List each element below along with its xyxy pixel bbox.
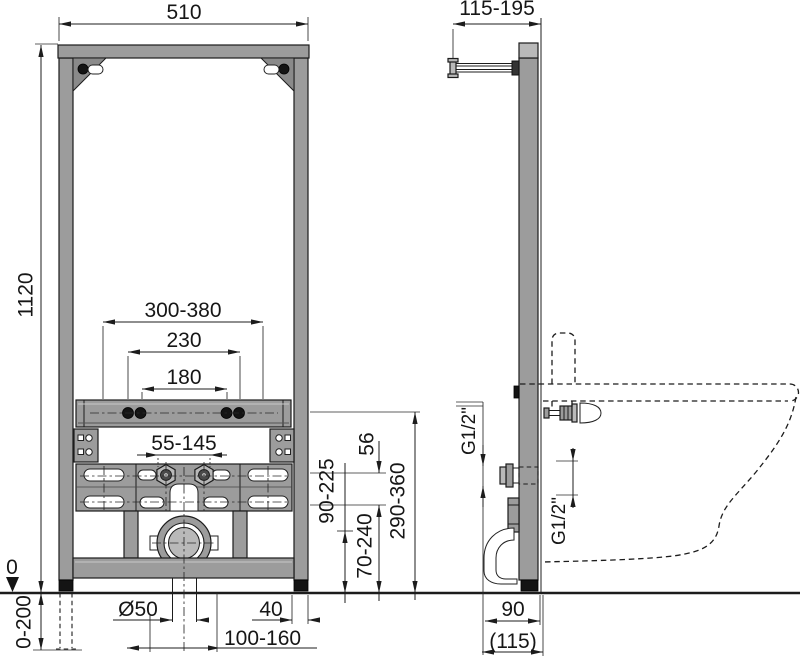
seat-crossbar <box>76 400 291 427</box>
dim-frame-height: 1120 <box>15 272 38 317</box>
drain-elbow <box>484 498 519 584</box>
dim-stud-180: 180 <box>166 366 201 389</box>
corner-gusset-right <box>261 58 294 91</box>
stud-cap-icon <box>580 403 601 423</box>
dim-drain-offset: 100-160 <box>224 627 301 650</box>
dim-height-studs: 290-360 <box>387 462 410 539</box>
dim-height-water: 90-225 <box>316 458 339 523</box>
anchor-bolt-icon <box>78 64 88 74</box>
dim-profile-width: 40 <box>259 598 282 621</box>
slot-hole <box>138 470 156 480</box>
adjustable-leg-dashed <box>56 593 77 649</box>
drawing-canvas: 510 1120 300-380 230 180 55-145 0 <box>0 0 800 658</box>
dim-stud-range: 300-380 <box>144 299 221 322</box>
lower-strut-left <box>124 511 138 558</box>
dim-drain-diameter: Ø50 <box>118 598 158 621</box>
anchor-bolt-icon <box>279 64 289 74</box>
wall-anchor-bracket <box>448 59 519 78</box>
front-right-post <box>294 58 308 580</box>
slot-hole <box>204 497 228 508</box>
bracket-plate-right <box>270 429 294 462</box>
dim-height-drain: 70-240 <box>354 513 377 578</box>
side-post-cap <box>519 43 538 58</box>
bracket-plate-left <box>74 429 98 462</box>
side-post <box>519 58 538 580</box>
dim-floor-zero: 0 <box>6 556 18 579</box>
front-left-post <box>59 58 73 580</box>
dim-height-56: 56 <box>356 432 379 455</box>
floor-reference-marker: 0 <box>6 556 19 592</box>
dim-depth-range: 115-195 <box>459 0 535 20</box>
technical-drawing: 510 1120 300-380 230 180 55-145 0 <box>0 0 800 658</box>
label-water-connection-rear: G1/2" <box>459 407 480 455</box>
drain-pipe <box>173 578 197 622</box>
slot-hole <box>212 470 230 480</box>
corner-gusset-left <box>73 58 106 91</box>
side-view-dimensions: 115-195 G1/2" G1/2" 90 (115) <box>453 0 578 656</box>
foot-pad-left <box>59 580 73 591</box>
front-top-rail <box>58 45 309 58</box>
level-triangle-icon <box>6 577 19 592</box>
foot-pad-right <box>294 580 308 591</box>
dim-bolt-range: 55-145 <box>151 432 216 455</box>
dim-stud-230: 230 <box>166 329 201 352</box>
side-foot-pad <box>521 580 538 591</box>
slot-hole <box>140 497 164 508</box>
dim-frame-width: 510 <box>166 1 201 24</box>
rear-fixing-block <box>514 386 519 398</box>
lower-strut-right <box>233 511 247 558</box>
dim-outlet-distance: 90 <box>501 598 524 621</box>
dim-leg-range: 0-200 <box>13 595 36 649</box>
label-water-connection-front: G1/2" <box>549 497 570 545</box>
front-bottom-rail <box>73 558 294 578</box>
dim-outlet-distance-alt: (115) <box>489 630 536 653</box>
side-view-drawing <box>448 18 799 593</box>
